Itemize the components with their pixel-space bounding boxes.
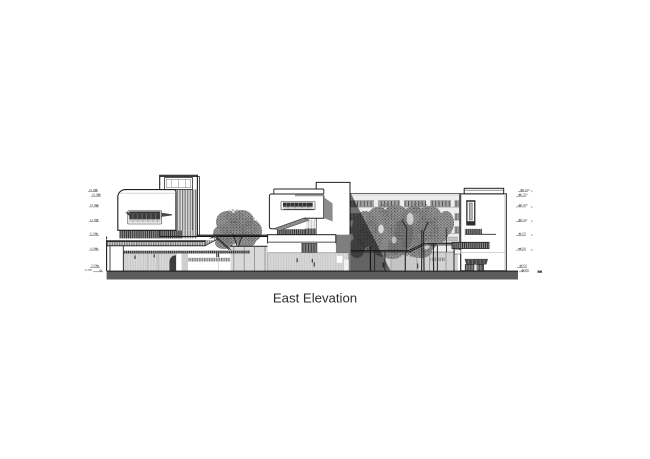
svg-text:F: F xyxy=(531,220,533,224)
svg-text:F: F xyxy=(531,248,533,252)
svg-text:-0.450: -0.450 xyxy=(84,268,92,272)
svg-text:F: F xyxy=(531,190,533,194)
svg-text:F: F xyxy=(531,233,533,237)
svg-text:East Elevation: East Elevation xyxy=(273,291,357,306)
svg-text:F: F xyxy=(531,205,533,209)
